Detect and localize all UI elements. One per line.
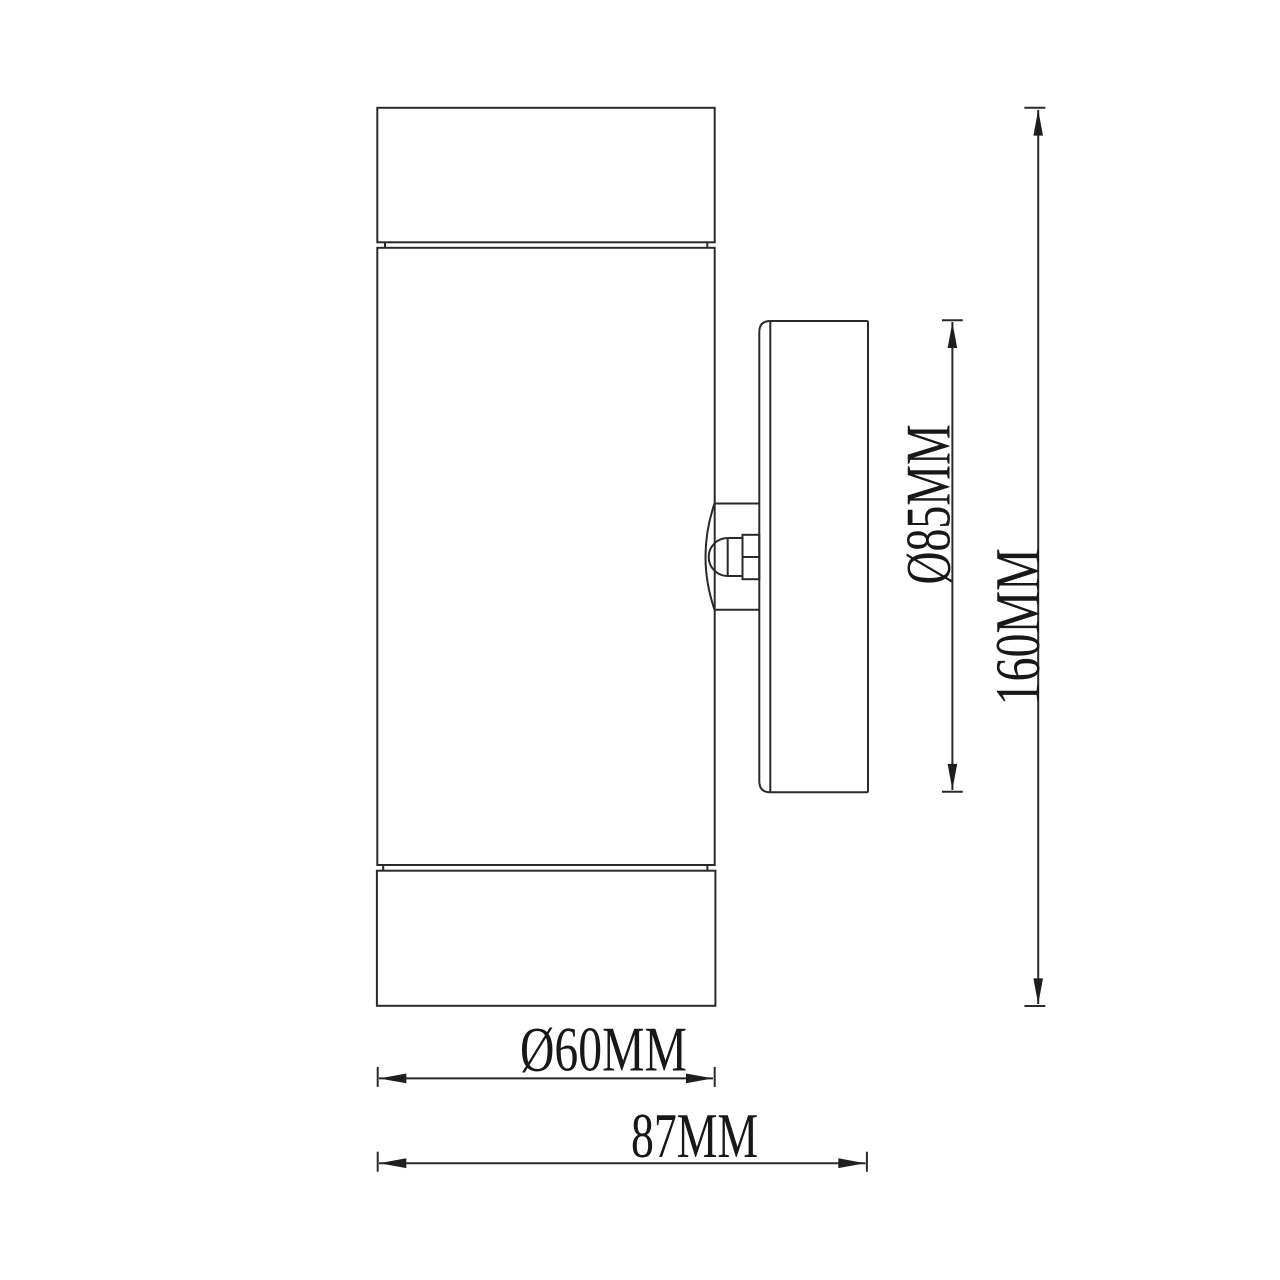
svg-text:160MM: 160MM: [983, 548, 1053, 705]
svg-text:Ø85MM: Ø85MM: [893, 424, 964, 584]
svg-text:87MM: 87MM: [631, 1101, 758, 1172]
svg-text:Ø60MM: Ø60MM: [520, 1015, 687, 1085]
